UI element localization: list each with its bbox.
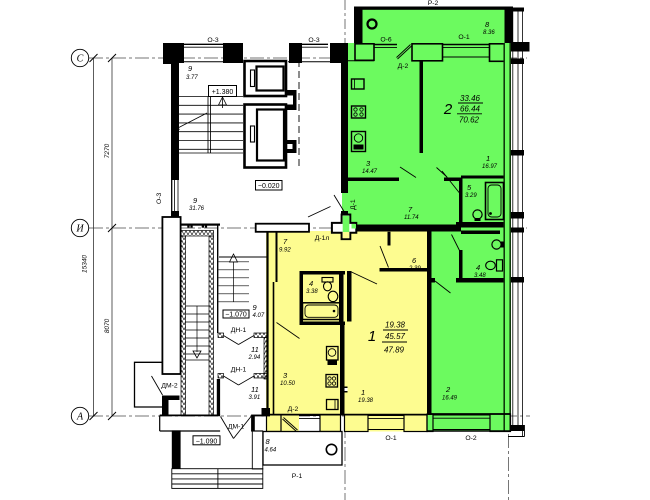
- svg-text:70.62: 70.62: [459, 116, 480, 125]
- svg-text:14.47: 14.47: [362, 169, 378, 175]
- svg-text:Р-2: Р-2: [428, 0, 439, 7]
- svg-text:−0.020: −0.020: [258, 183, 280, 190]
- svg-text:О-1: О-1: [385, 435, 397, 442]
- svg-text:4: 4: [309, 279, 313, 288]
- svg-text:А: А: [76, 412, 84, 423]
- svg-text:О-1: О-1: [458, 34, 470, 41]
- svg-text:9.92: 9.92: [279, 248, 291, 254]
- svg-text:−1.090: −1.090: [196, 438, 218, 445]
- svg-text:Р-1: Р-1: [292, 473, 303, 480]
- svg-text:66.44: 66.44: [460, 105, 481, 114]
- svg-text:О-3: О-3: [308, 37, 320, 44]
- svg-text:ДМ-1: ДМ-1: [228, 424, 245, 431]
- svg-text:Д-2: Д-2: [398, 63, 409, 70]
- svg-text:15340: 15340: [82, 255, 89, 273]
- svg-text:4: 4: [476, 263, 480, 272]
- svg-text:11: 11: [251, 385, 259, 394]
- svg-text:2: 2: [445, 385, 451, 394]
- svg-text:3.77: 3.77: [186, 75, 198, 81]
- svg-text:7270: 7270: [104, 143, 111, 158]
- svg-text:О-2: О-2: [465, 435, 477, 442]
- svg-text:О-3: О-3: [207, 37, 219, 44]
- svg-text:2.94: 2.94: [248, 355, 261, 361]
- svg-text:3.91: 3.91: [249, 395, 261, 401]
- svg-text:8070: 8070: [104, 318, 111, 333]
- svg-text:Д-2: Д-2: [288, 406, 299, 413]
- svg-text:19.38: 19.38: [385, 321, 406, 330]
- svg-text:+1.380: +1.380: [212, 89, 234, 96]
- svg-text:1: 1: [368, 328, 376, 345]
- svg-text:4.07: 4.07: [253, 313, 265, 319]
- svg-text:С: С: [77, 54, 84, 65]
- svg-text:3.29: 3.29: [465, 193, 477, 199]
- svg-text:Д-1л: Д-1л: [315, 235, 330, 242]
- svg-text:2: 2: [443, 101, 453, 118]
- svg-text:2.39: 2.39: [408, 266, 421, 272]
- svg-text:−1.070: −1.070: [225, 312, 247, 319]
- svg-text:16.49: 16.49: [442, 396, 458, 402]
- svg-text:33.46: 33.46: [460, 94, 481, 103]
- svg-text:3.38: 3.38: [306, 289, 318, 295]
- svg-text:ДМ-2: ДМ-2: [161, 383, 178, 390]
- svg-text:16.97: 16.97: [482, 164, 498, 170]
- svg-text:11: 11: [251, 345, 259, 354]
- svg-text:11.74: 11.74: [404, 215, 419, 221]
- svg-text:ДН-1: ДН-1: [231, 327, 247, 334]
- svg-text:О-3: О-3: [156, 192, 163, 204]
- svg-text:8.36: 8.36: [483, 30, 495, 36]
- svg-text:47.89: 47.89: [384, 346, 405, 355]
- svg-text:3.48: 3.48: [474, 273, 486, 279]
- svg-text:О-6: О-6: [380, 37, 392, 44]
- svg-text:10.50: 10.50: [280, 381, 296, 387]
- svg-text:31.76: 31.76: [189, 206, 205, 212]
- svg-text:1: 1: [486, 154, 490, 163]
- svg-text:45.57: 45.57: [385, 332, 406, 341]
- svg-text:ДН-1: ДН-1: [231, 367, 247, 374]
- svg-text:И: И: [75, 224, 84, 235]
- svg-text:Д-1: Д-1: [350, 199, 357, 210]
- svg-text:1: 1: [361, 388, 365, 397]
- svg-text:19.38: 19.38: [358, 398, 374, 404]
- svg-text:4.64: 4.64: [265, 448, 277, 454]
